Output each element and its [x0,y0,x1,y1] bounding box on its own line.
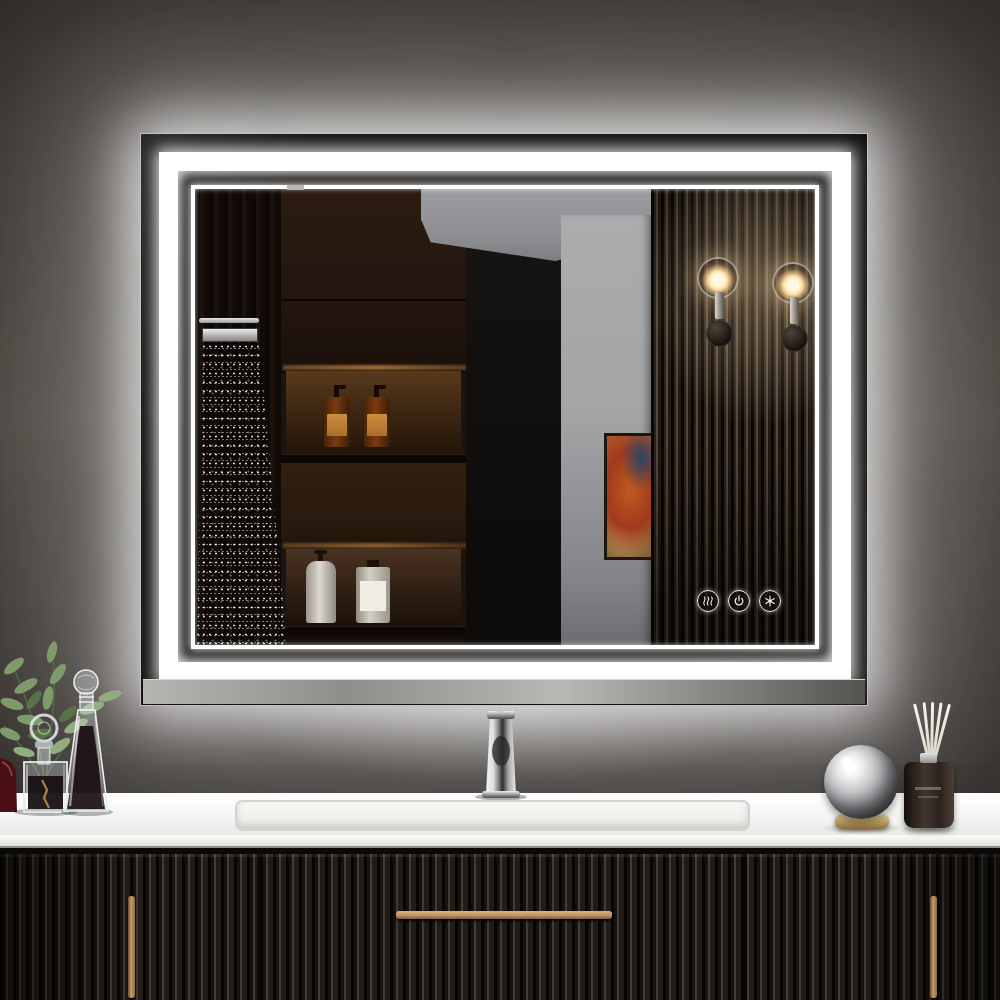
mirror-bottom-bevel [143,679,865,704]
diffuser-collar [920,753,937,763]
power-dimmer-button[interactable] [728,590,750,612]
countertop-front-edge [0,835,1000,848]
led-line-notch [287,185,304,190]
left-counter-decor [0,630,230,816]
diffuser-label-line [915,787,941,790]
mirror-touch-controls [697,590,781,612]
door-seam [257,854,260,1000]
inner-led-line [191,185,819,649]
led-mirror [140,133,868,706]
defog-button[interactable] [697,590,719,612]
fluted-cabinet [0,854,1000,1000]
faucet-base [482,791,520,798]
color-temp-icon [763,594,777,608]
right-door-handle [930,896,937,998]
bathroom-scene [0,0,1000,1000]
power-icon [732,594,746,608]
color-temperature-button[interactable] [759,590,781,612]
chrome-faucet [455,705,545,800]
eucalyptus-plant [0,640,123,780]
sink-basin [235,800,750,831]
diffuser-label-line [918,796,938,798]
door-seam [744,854,747,1000]
left-door-handle [128,896,135,998]
red-glass-object [0,758,17,812]
drawer-handle [396,911,612,919]
chrome-sphere [824,745,898,819]
reed-diffuser-bottle [904,762,954,828]
defog-icon [701,594,715,608]
